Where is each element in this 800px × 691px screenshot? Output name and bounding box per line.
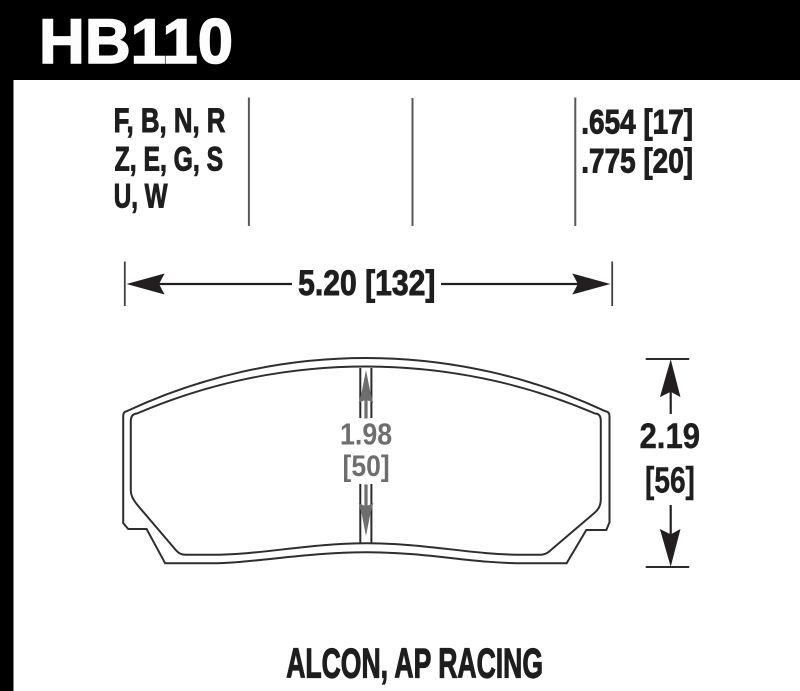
svg-text:[56]: [56]: [645, 460, 695, 500]
svg-text:5.20 [132]: 5.20 [132]: [298, 263, 435, 303]
svg-text:.775 [20]: .775 [20]: [581, 142, 693, 180]
svg-text:2.19: 2.19: [640, 417, 701, 456]
svg-text:HB110: HB110: [39, 7, 233, 77]
svg-text:F, B, N, R: F, B, N, R: [114, 101, 226, 140]
svg-text:ALCON, AP RACING: ALCON, AP RACING: [286, 641, 543, 688]
svg-text:[50]: [50]: [343, 448, 390, 482]
svg-text:Z, E, G, S: Z, E, G, S: [115, 140, 224, 178]
svg-text:U, W: U, W: [114, 178, 169, 216]
svg-text:1.98: 1.98: [340, 418, 392, 452]
svg-text:.654 [17]: .654 [17]: [581, 103, 693, 141]
